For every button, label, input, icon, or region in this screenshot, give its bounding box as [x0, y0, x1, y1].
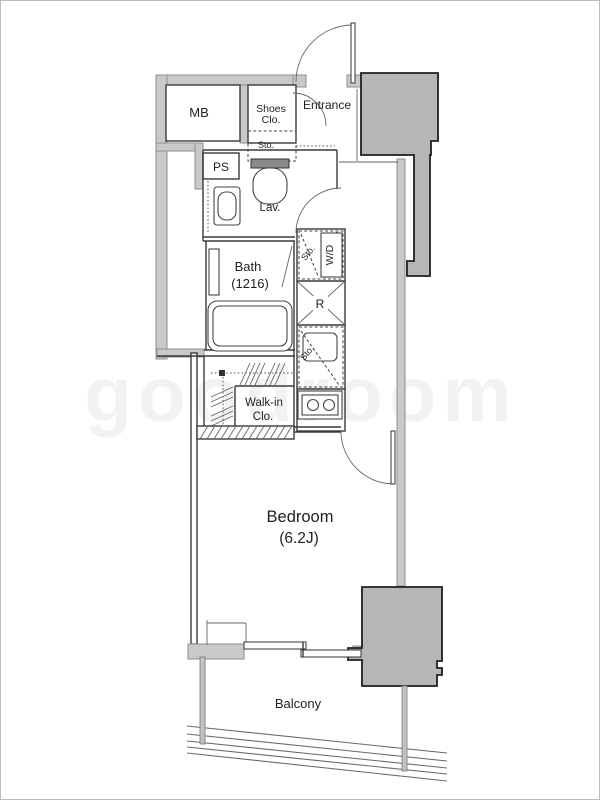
bath-top-wall: [203, 237, 295, 241]
bedroom-door-arc: [341, 431, 394, 484]
lavatory-door-arc: [296, 188, 341, 233]
wall-right: [397, 159, 405, 586]
wall-bottom-sill: [188, 644, 244, 659]
stove-burner-left: [308, 400, 319, 411]
fixture-label-sto-toilet: Sto.: [258, 140, 274, 150]
room-label-ps: PS: [213, 160, 229, 174]
balcony-post-left: [200, 657, 205, 744]
room-label-balcony: Balcony: [275, 696, 322, 711]
floorplan-drawing: goodroom: [1, 1, 600, 800]
wall-ps-left: [195, 143, 203, 189]
wall-left-lower: [191, 353, 197, 644]
room-label-bedroom-line1: Bedroom: [267, 508, 334, 526]
bedroom-corner-step: [207, 620, 246, 645]
fixture-label-sto-wd: Sto.: [299, 244, 317, 263]
room-label-mb: MB: [189, 105, 209, 120]
bath-label-leader: [282, 246, 292, 287]
balcony-window: [244, 642, 361, 657]
fixture-label-wd: W/D: [324, 244, 336, 265]
pillar-bottom-right: [348, 587, 442, 686]
room-label-entrance: Entrance: [303, 98, 351, 112]
toilet-tank: [251, 159, 289, 168]
entrance-door-leaf: [351, 23, 355, 83]
bedroom-door-leaf: [391, 431, 395, 484]
balcony-post-right: [402, 686, 407, 771]
vanity-basin: [218, 192, 236, 220]
room-label-wic-line1: Walk-in: [245, 397, 283, 409]
room-label-bath-line1: Bath: [235, 259, 262, 274]
toilet-bowl: [253, 168, 287, 204]
bath-shelf: [209, 249, 219, 295]
wall-top: [156, 75, 297, 85]
room-label-bath-line2: (1216): [231, 276, 269, 291]
wic-rail-anchor: [219, 370, 225, 376]
window-panel-left: [244, 642, 306, 649]
room-label-bedroom-line2: (6.2J): [279, 530, 319, 547]
entrance-door-arc: [296, 25, 353, 82]
stove-burner-right: [324, 400, 335, 411]
room-label-wic-line2: Clo.: [253, 411, 273, 423]
window-panel-right: [301, 650, 361, 657]
fixture-label-fridge: R: [316, 297, 325, 311]
wic-bottom-band: [197, 426, 294, 439]
bathtub-inner: [213, 306, 287, 346]
room-label-shoes-line2: Clo.: [262, 114, 281, 126]
room-label-lav: Lav.: [260, 202, 281, 214]
floorplan-page: goodroom: [0, 0, 600, 800]
